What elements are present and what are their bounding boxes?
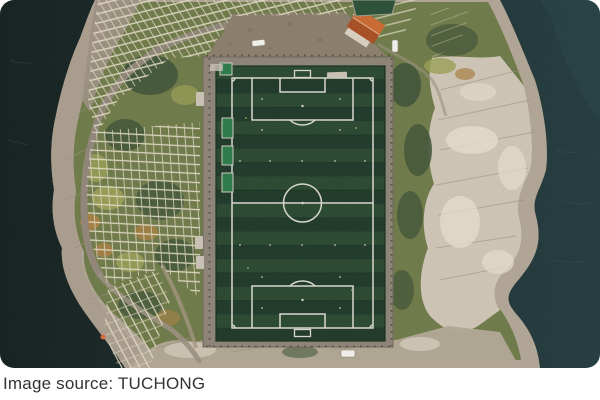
image-source-caption: Image source: TUCHONG [0, 368, 600, 394]
photo-grain [0, 0, 600, 368]
page: Image source: TUCHONG [0, 0, 600, 400]
aerial-photo [0, 0, 600, 368]
aerial-photo-canvas [0, 0, 600, 368]
